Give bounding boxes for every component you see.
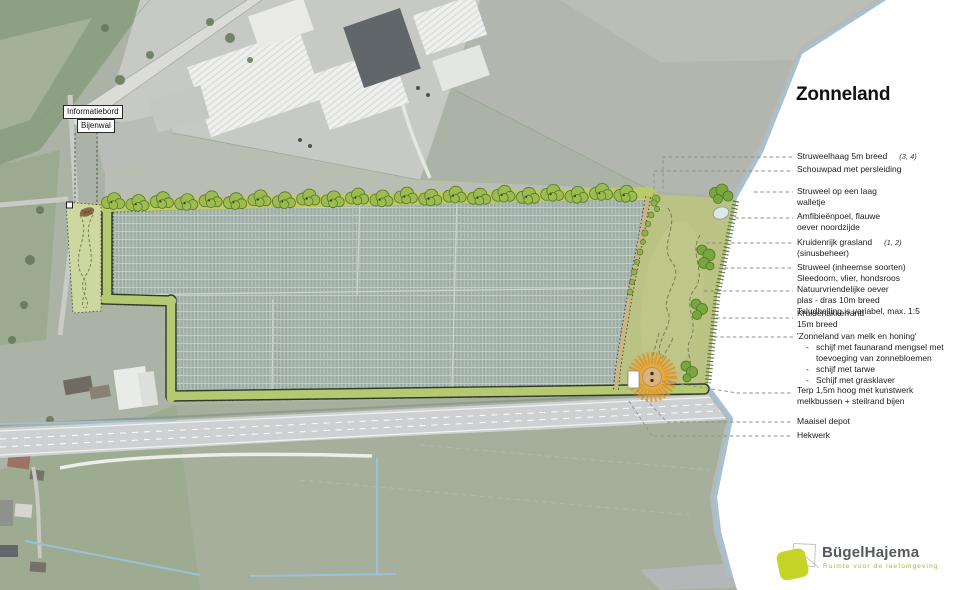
- plan-overlay: [66, 184, 736, 404]
- annotation-maaisel-depot: Maaisel depot: [797, 416, 960, 427]
- ref-number: (1, 2): [884, 238, 902, 247]
- logo-tagline: Ruimte voor de leefomgeving: [823, 563, 939, 570]
- annotation-kruidenrijk-grasland: Kruidenrijk grasland(1, 2) (sinusbeheer): [797, 237, 960, 259]
- label-informatiebord: Informatiebord: [63, 105, 123, 119]
- annotation-struweelhaag: Struweelhaag 5m breed(3, 4): [797, 151, 960, 162]
- annotation-struweel-walletje: Struweel op een laag walletje: [797, 186, 960, 208]
- annotation-melk-en-honing: 'Zonneland van melk en honing' -schijf m…: [797, 331, 960, 386]
- solar-panel-field: [113, 194, 650, 400]
- informatiebord-marker: [67, 202, 73, 208]
- page-title: Zonneland: [796, 84, 890, 106]
- annotation-kruidenakkerrand: Kruidenakkerrand 15m breed: [797, 308, 960, 330]
- annotation-amfibieenpoel: Amfibieënpoel, flauwe oever noordzijde: [797, 211, 960, 233]
- maaisel-depot-marker: [628, 371, 639, 388]
- annotation-schouwpad: Schouwpad met persleiding: [797, 164, 960, 175]
- ref-number: (3, 4): [899, 152, 917, 161]
- annotation-terp: Terp 1,5m hoog met kunstwerk melkbussen …: [797, 385, 960, 407]
- label-bijenwal: Bijenwal: [77, 119, 115, 133]
- landscape-plan-poster: Zonneland Informatiebord Bijenwal Struwe…: [0, 0, 960, 590]
- annotation-struweel-soorten: Struweel (inheemse soorten) Sleedoorn, v…: [797, 262, 960, 284]
- logo-name: BügelHajema: [822, 544, 919, 561]
- bugelhajema-logo: BügelHajema Ruimte voor de leefomgeving: [775, 538, 957, 588]
- logo-mark-icon: [775, 538, 821, 586]
- annotation-hekwerk: Hekwerk: [797, 430, 960, 441]
